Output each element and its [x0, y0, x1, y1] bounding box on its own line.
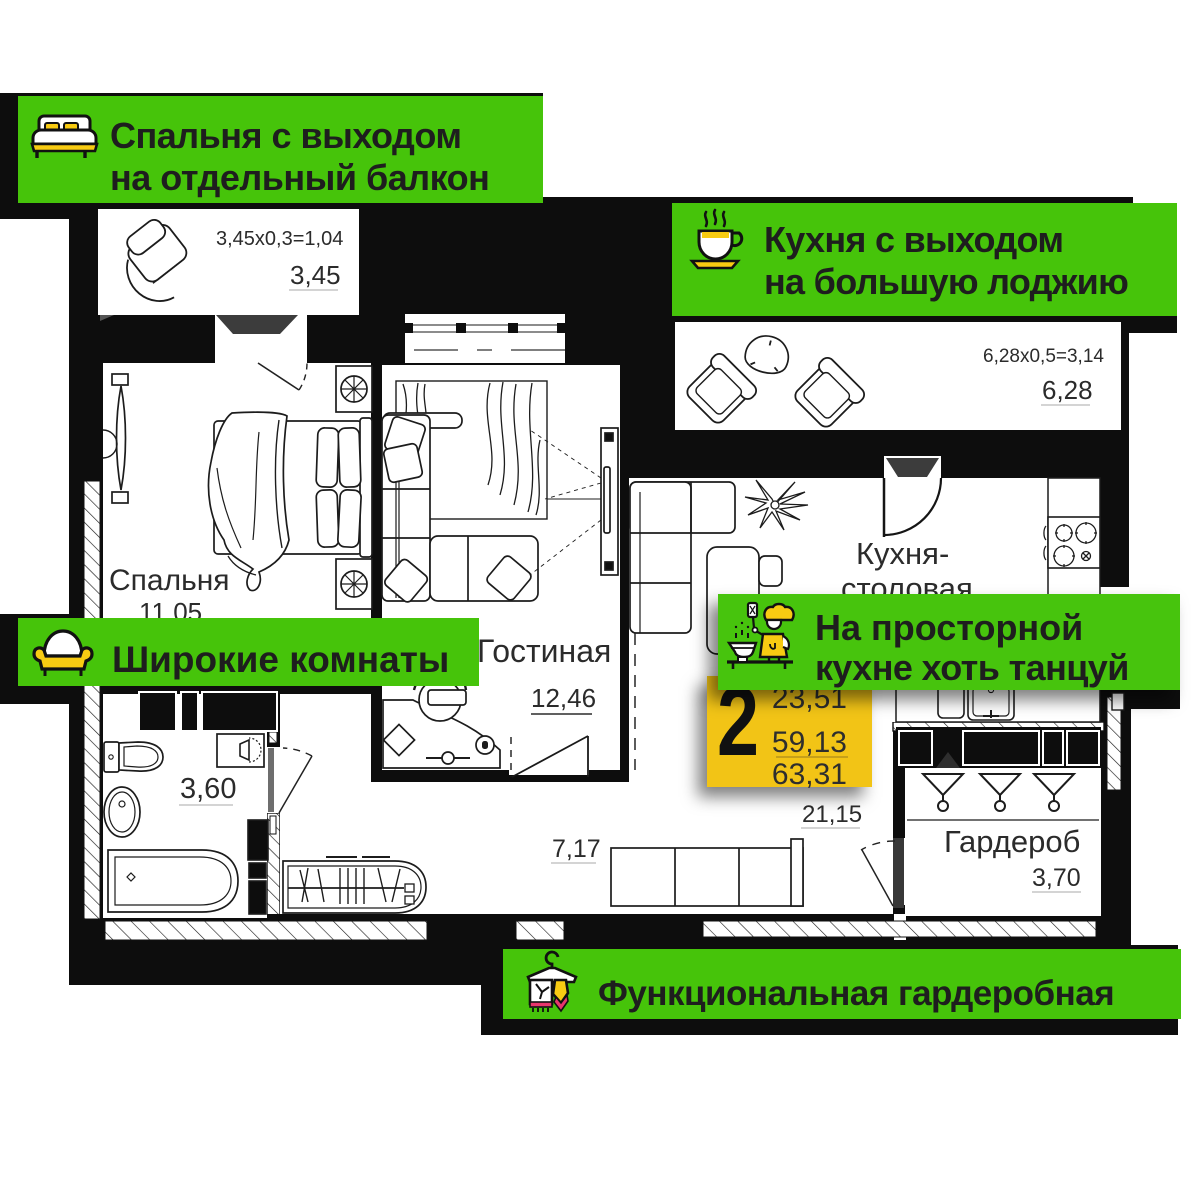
svg-text:3,45: 3,45 [290, 260, 341, 290]
svg-text:Кухня с выходом: Кухня с выходом [764, 219, 1063, 260]
svg-text:21,15: 21,15 [802, 801, 862, 828]
svg-text:На просторной: На просторной [815, 607, 1083, 648]
svg-text:Гардероб: Гардероб [944, 824, 1080, 859]
svg-text:3,60: 3,60 [180, 773, 236, 805]
svg-text:12,46: 12,46 [531, 683, 596, 713]
svg-text:6,28x0,5=3,14: 6,28x0,5=3,14 [983, 346, 1104, 367]
svg-text:59,13: 59,13 [772, 726, 847, 759]
svg-text:кухне хоть танцуй: кухне хоть танцуй [815, 647, 1129, 688]
svg-text:Спальня с выходом: Спальня с выходом [110, 115, 462, 156]
svg-text:3,45x0,3=1,04: 3,45x0,3=1,04 [216, 228, 343, 250]
svg-text:Функциональная гардеробная: Функциональная гардеробная [598, 974, 1114, 1013]
svg-text:Кухня-: Кухня- [856, 536, 949, 571]
svg-text:6,28: 6,28 [1042, 375, 1093, 405]
svg-text:Широкие комнаты: Широкие комнаты [112, 639, 449, 680]
svg-text:7,17: 7,17 [552, 835, 601, 863]
svg-text:Гостиная: Гостиная [477, 633, 611, 669]
svg-text:на отдельный балкон: на отдельный балкон [110, 157, 489, 198]
svg-text:на большую лоджию: на большую лоджию [764, 261, 1128, 302]
svg-text:63,31: 63,31 [772, 758, 847, 791]
svg-text:3,70: 3,70 [1032, 864, 1081, 892]
svg-text:Спальня: Спальня [109, 564, 230, 597]
